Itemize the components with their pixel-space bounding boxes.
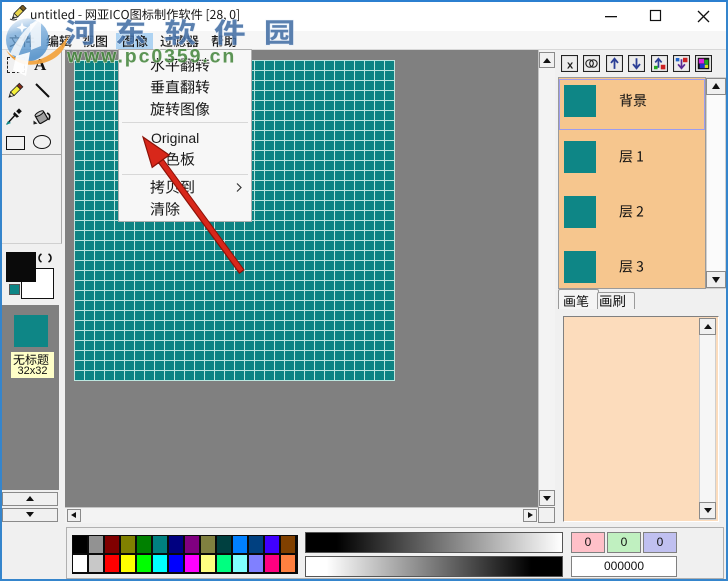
svg-text:x: x <box>567 59 574 71</box>
svg-text:www.pc0359.cn: www.pc0359.cn <box>67 46 236 68</box>
